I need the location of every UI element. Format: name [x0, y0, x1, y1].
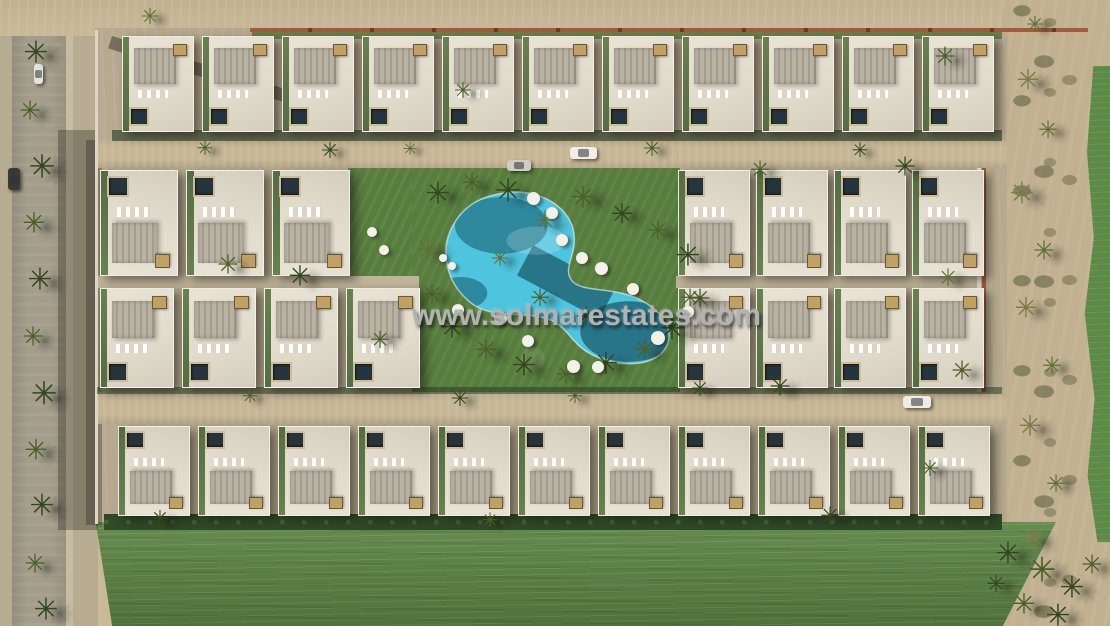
palm-tree-icon: ✳: [1009, 180, 1034, 210]
villa: [282, 36, 354, 132]
villa-roof: [438, 426, 510, 516]
villa: [358, 426, 430, 516]
villa: [518, 426, 590, 516]
palm-tree-icon: ✳: [23, 39, 48, 69]
villa-sun-loungers: [858, 90, 889, 98]
villa-sun-loungers: [694, 207, 725, 216]
villa-plunge-pool: [289, 107, 310, 126]
villa-solar-roof: [112, 301, 155, 338]
villa-sun-loungers: [294, 458, 325, 466]
villa-plunge-pool: [841, 362, 862, 382]
villa-plunge-pool: [445, 431, 466, 449]
palm-tree-icon: ✳: [1016, 67, 1039, 95]
villa-solar-roof: [770, 471, 812, 504]
villa-roof: [100, 170, 178, 276]
car: [507, 160, 531, 171]
palm-tree-icon: ✳: [1045, 602, 1070, 626]
villa: [842, 36, 914, 132]
villa-sun-loungers: [280, 344, 312, 353]
villa-plunge-pool: [849, 107, 870, 126]
villa-roof-access: [249, 497, 263, 509]
villa-roof: [358, 426, 430, 516]
palm-tree-icon: ✳: [370, 329, 390, 353]
villa-solar-roof: [924, 223, 966, 263]
aerial-photo: ✳✳✳✳✳✳✳✳✳✳✳✳✳✳✳✳✳✳✳✳✳✳✳✳✳✳✳✳✳✳✳✳✳✳✳✳✳✳✳✳…: [0, 0, 1110, 626]
villa-roof: [834, 170, 906, 276]
palm-tree-icon: ✳: [675, 242, 700, 272]
villa-sun-loungers: [938, 90, 969, 98]
palm-tree-icon: ✳: [986, 573, 1006, 597]
villa-roof-access: [234, 296, 248, 309]
villa: [182, 288, 256, 388]
palm-tree-icon: ✳: [1038, 119, 1058, 143]
villa-solar-roof: [284, 223, 330, 263]
palm-tree-icon: ✳: [454, 80, 472, 102]
villa-plunge-pool: [919, 176, 940, 197]
villa: [602, 36, 674, 132]
sun-umbrella: [556, 234, 568, 246]
villa: [264, 288, 338, 388]
palm-tree-icon: ✳: [197, 139, 214, 159]
palm-tree-icon: ✳: [402, 140, 417, 158]
villa: [278, 426, 350, 516]
villa-roof: [100, 288, 174, 388]
villa-plunge-pool: [129, 107, 150, 126]
villa-plunge-pool: [369, 107, 390, 126]
villa-sun-loungers: [117, 207, 150, 216]
palm-tree-icon: ✳: [610, 201, 633, 229]
sun-umbrella: [522, 335, 534, 347]
villa: [598, 426, 670, 516]
villa-roof-access: [889, 497, 903, 509]
sun-umbrella: [448, 262, 456, 270]
villa-sun-loungers: [694, 344, 725, 353]
villa-plunge-pool: [685, 176, 706, 197]
villa-roof: [682, 36, 754, 132]
villa-roof-access: [333, 44, 347, 56]
villa-roof-access: [813, 44, 827, 56]
palm-tree-icon: ✳: [24, 437, 47, 465]
car-windshield: [10, 175, 18, 184]
sun-umbrella: [567, 360, 580, 373]
villa-roof: [518, 426, 590, 516]
villa-roof-access: [893, 44, 907, 56]
villa-plunge-pool: [193, 176, 215, 197]
villa-plunge-pool: [605, 431, 626, 449]
palm-tree-icon: ✳: [921, 458, 939, 480]
villa-plunge-pool: [609, 107, 630, 126]
villa: [834, 170, 906, 276]
villa-roof: [842, 36, 914, 132]
palm-tree-icon: ✳: [425, 180, 450, 210]
villa-roof-access: [885, 254, 899, 267]
villa-plunge-pool: [353, 362, 374, 382]
villa-roof-access: [241, 254, 256, 267]
villa-sun-loungers: [374, 458, 405, 466]
villa-roof-access: [963, 254, 977, 267]
car-windshield: [911, 398, 922, 406]
villa-solar-roof: [850, 471, 892, 504]
villa-roof: [912, 288, 984, 388]
white-boundary-wall-left: [95, 30, 98, 524]
sun-umbrella: [627, 283, 639, 295]
villa-plunge-pool: [107, 176, 129, 197]
villa: [682, 36, 754, 132]
villa-solar-roof: [134, 48, 176, 84]
villa-sun-loungers: [534, 458, 565, 466]
villa-plunge-pool: [765, 431, 786, 449]
villa: [100, 288, 174, 388]
palm-tree-icon: ✳: [27, 266, 52, 296]
palm-tree-icon: ✳: [894, 154, 916, 180]
villa: [202, 36, 274, 132]
palm-tree-icon: ✳: [1023, 526, 1045, 552]
villa-plunge-pool: [107, 362, 128, 382]
palm-tree-icon: ✳: [416, 237, 439, 265]
palm-tree-icon: ✳: [1026, 14, 1044, 36]
palm-tree-icon: ✳: [321, 140, 339, 162]
villa-roof: [602, 36, 674, 132]
car: [8, 168, 20, 190]
palm-tree-icon: ✳: [19, 98, 41, 124]
palm-tree-icon: ✳: [1018, 413, 1041, 441]
villa-roof-access: [807, 254, 821, 267]
villa-plunge-pool: [279, 176, 301, 197]
villa: [362, 36, 434, 132]
palm-tree-icon: ✳: [29, 492, 54, 522]
palm-tree-icon: ✳: [1046, 473, 1066, 497]
villa-sun-loungers: [772, 207, 803, 216]
villa-roof: [912, 170, 984, 276]
villa-solar-roof: [450, 471, 492, 504]
villa-sun-loungers: [850, 207, 881, 216]
palm-tree-icon: ✳: [461, 170, 483, 196]
palm-tree-icon: ✳: [217, 252, 239, 278]
villa-solar-roof: [276, 301, 319, 338]
villa: [198, 426, 270, 516]
palm-tree-icon: ✳: [647, 218, 669, 244]
villa-solar-roof: [768, 223, 810, 263]
villa-plunge-pool: [449, 107, 470, 126]
villa-roof-access: [152, 296, 166, 309]
villa-plunge-pool: [689, 107, 710, 126]
villa-roof: [598, 426, 670, 516]
palm-tree-icon: ✳: [769, 374, 791, 400]
villa-sun-loungers: [138, 90, 169, 98]
sun-umbrella: [651, 331, 665, 345]
villa-plunge-pool: [525, 431, 546, 449]
villa-solar-roof: [774, 48, 816, 84]
palm-tree-icon: ✳: [242, 387, 259, 407]
walkway-left: [97, 276, 419, 288]
villa: [118, 426, 190, 516]
palm-tree-icon: ✳: [491, 248, 509, 270]
watermark-text: www.solmarestates.com: [412, 299, 761, 333]
villa-roof: [198, 426, 270, 516]
villa-solar-roof: [290, 471, 332, 504]
villa-sun-loungers: [854, 458, 885, 466]
car: [570, 147, 597, 159]
villa-solar-roof: [768, 301, 810, 338]
palm-tree-icon: ✳: [938, 267, 958, 291]
villa-solar-roof: [614, 48, 656, 84]
villa-solar-roof: [610, 471, 652, 504]
villa-solar-roof: [534, 48, 576, 84]
villa-plunge-pool: [685, 431, 706, 449]
hedge-bottom-boundary: [104, 514, 1002, 530]
villa-plunge-pool: [209, 107, 230, 126]
villa-solar-roof: [214, 48, 256, 84]
villa: [756, 170, 828, 276]
villa-plunge-pool: [845, 431, 866, 449]
villa-roof-access: [155, 254, 170, 267]
villa-solar-roof: [690, 471, 732, 504]
sun-umbrella: [379, 245, 389, 255]
villa-sun-loungers: [198, 344, 230, 353]
villa-sun-loungers: [378, 90, 409, 98]
villa-roof-access: [489, 497, 503, 509]
palm-tree-icon: ✳: [1033, 238, 1055, 264]
villa-plunge-pool: [529, 107, 550, 126]
villa-solar-roof: [846, 223, 888, 263]
villa-roof-access: [569, 497, 583, 509]
villa-roof: [838, 426, 910, 516]
villa-solar-roof: [530, 471, 572, 504]
villa-roof: [762, 36, 834, 132]
upper-internal-road: [95, 138, 1007, 168]
villa: [522, 36, 594, 132]
villa-sun-loungers: [618, 90, 649, 98]
palm-tree-icon: ✳: [29, 150, 56, 182]
villa-roof: [756, 288, 828, 388]
villa-sun-loungers: [614, 458, 645, 466]
villa-sun-loungers: [778, 90, 809, 98]
villa-roof: [522, 36, 594, 132]
villa-solar-roof: [924, 301, 966, 338]
palm-tree-icon: ✳: [495, 174, 522, 206]
sun-umbrella: [367, 227, 377, 237]
villa-roof-access: [649, 497, 663, 509]
villa-roof-access: [327, 254, 342, 267]
villa-sun-loungers: [698, 90, 729, 98]
car-windshield: [514, 162, 524, 170]
villa-plunge-pool: [125, 431, 146, 449]
villa-roof: [202, 36, 274, 132]
villa-sun-loungers: [289, 207, 322, 216]
palm-tree-icon: ✳: [643, 138, 661, 160]
villa-sun-loungers: [928, 344, 959, 353]
palm-tree-icon: ✳: [951, 358, 973, 384]
villa-roof: [678, 426, 750, 516]
villa-plunge-pool: [919, 362, 940, 382]
palm-tree-icon: ✳: [511, 352, 536, 382]
palm-tree-icon: ✳: [1028, 553, 1057, 587]
villa-roof-access: [316, 296, 330, 309]
lower-internal-road: [95, 392, 1007, 424]
palm-tree-icon: ✳: [24, 551, 46, 577]
villa-sun-loungers: [116, 344, 148, 353]
sun-umbrella: [576, 252, 588, 264]
palm-tree-icon: ✳: [1012, 591, 1035, 619]
car-windshield: [578, 149, 589, 157]
villa-roof-access: [493, 44, 507, 56]
sun-umbrella: [527, 192, 540, 205]
villa-roof: [182, 288, 256, 388]
villa-roof-access: [573, 44, 587, 56]
villa-plunge-pool: [189, 362, 210, 382]
villa-roof-access: [169, 497, 183, 509]
palm-tree-icon: ✳: [934, 44, 956, 70]
villa-sun-loungers: [454, 458, 485, 466]
villa-plunge-pool: [271, 362, 292, 382]
villa-roof-access: [173, 44, 187, 56]
villa-solar-roof: [130, 471, 172, 504]
villa-plunge-pool: [841, 176, 862, 197]
villa-sun-loungers: [772, 344, 803, 353]
villa-solar-roof: [854, 48, 896, 84]
villa-roof: [282, 36, 354, 132]
villa-sun-loungers: [694, 458, 725, 466]
villa-sun-loungers: [134, 458, 165, 466]
palm-tree-icon: ✳: [995, 540, 1020, 570]
villa: [912, 288, 984, 388]
villa-solar-roof: [194, 301, 237, 338]
villa-roof-access: [973, 44, 987, 56]
palm-tree-icon: ✳: [151, 508, 169, 530]
villa-sun-loungers: [850, 344, 881, 353]
villa-sun-loungers: [774, 458, 805, 466]
palm-tree-icon: ✳: [482, 511, 499, 531]
palm-tree-icon: ✳: [691, 378, 709, 400]
villa: [838, 426, 910, 516]
villa-roof: [278, 426, 350, 516]
villa-roof-access: [729, 497, 743, 509]
villa-roof-access: [733, 44, 747, 56]
villa: [756, 288, 828, 388]
car-windshield: [35, 70, 41, 78]
villa-roof-access: [409, 497, 423, 509]
villa-roof-access: [963, 296, 977, 309]
villa-plunge-pool: [925, 431, 946, 449]
villa-row-mid-right-upper: [678, 170, 990, 276]
villa-row-bottom-row: [118, 426, 998, 516]
villa-roof-access: [885, 296, 899, 309]
villa-roof-access: [729, 254, 743, 267]
palm-tree-icon: ✳: [1081, 552, 1103, 578]
sun-umbrella: [439, 254, 447, 262]
palm-tree-icon: ✳: [1042, 355, 1062, 379]
villa-solar-roof: [294, 48, 336, 84]
palm-tree-icon: ✳: [451, 388, 469, 410]
villa-solar-roof: [370, 471, 412, 504]
villa-sun-loungers: [218, 90, 249, 98]
palm-tree-icon: ✳: [567, 387, 584, 407]
villa-sun-loungers: [214, 458, 245, 466]
palm-tree-icon: ✳: [22, 210, 45, 238]
villa-sun-loungers: [538, 90, 569, 98]
green-field: [88, 522, 1056, 626]
villa-plunge-pool: [769, 107, 790, 126]
villa-roof: [362, 36, 434, 132]
villa: [762, 36, 834, 132]
villa-roof: [756, 170, 828, 276]
villa: [912, 170, 984, 276]
palm-tree-icon: ✳: [474, 337, 497, 365]
villa-sun-loungers: [203, 207, 236, 216]
villa-plunge-pool: [285, 431, 306, 449]
villa-roof-access: [413, 44, 427, 56]
villa-sun-loungers: [928, 207, 959, 216]
villa-solar-roof: [374, 48, 416, 84]
villa-roof-access: [807, 296, 821, 309]
palm-tree-icon: ✳: [1014, 295, 1037, 323]
villa-sun-loungers: [298, 90, 329, 98]
villa-roof: [922, 36, 994, 132]
villa-roof-access: [969, 497, 983, 509]
palm-tree-icon: ✳: [288, 263, 311, 291]
sun-umbrella: [595, 262, 608, 275]
sun-umbrella: [546, 207, 558, 219]
villa-plunge-pool: [365, 431, 386, 449]
sun-umbrella: [592, 361, 604, 373]
villa-roof: [122, 36, 194, 132]
villa: [834, 288, 906, 388]
villa-row-top-row: [122, 36, 1002, 132]
villa-roof: [834, 288, 906, 388]
villa: [438, 426, 510, 516]
villa-roof: [118, 426, 190, 516]
palm-tree-icon: ✳: [570, 184, 595, 214]
villa-solar-roof: [112, 223, 158, 263]
villa-plunge-pool: [205, 431, 226, 449]
villa: [922, 36, 994, 132]
palm-tree-icon: ✳: [22, 324, 44, 350]
villa-roof-access: [398, 296, 412, 309]
palm-tree-icon: ✳: [820, 505, 840, 529]
car: [903, 396, 931, 408]
villa-roof-access: [329, 497, 343, 509]
villa-roof: [264, 288, 338, 388]
villa-plunge-pool: [929, 107, 950, 126]
palm-tree-icon: ✳: [852, 141, 869, 161]
villa-solar-roof: [846, 301, 888, 338]
palm-tree-icon: ✳: [750, 159, 770, 183]
villa-roof-access: [653, 44, 667, 56]
villa: [100, 170, 178, 276]
villa-solar-roof: [694, 48, 736, 84]
palm-tree-icon: ✳: [33, 596, 58, 626]
villa: [122, 36, 194, 132]
villa-roof-access: [253, 44, 267, 56]
villa: [678, 426, 750, 516]
palm-tree-icon: ✳: [141, 6, 159, 28]
hedge-above-lower-road: [97, 387, 1002, 394]
villa-solar-roof: [210, 471, 252, 504]
palm-tree-icon: ✳: [31, 377, 58, 409]
